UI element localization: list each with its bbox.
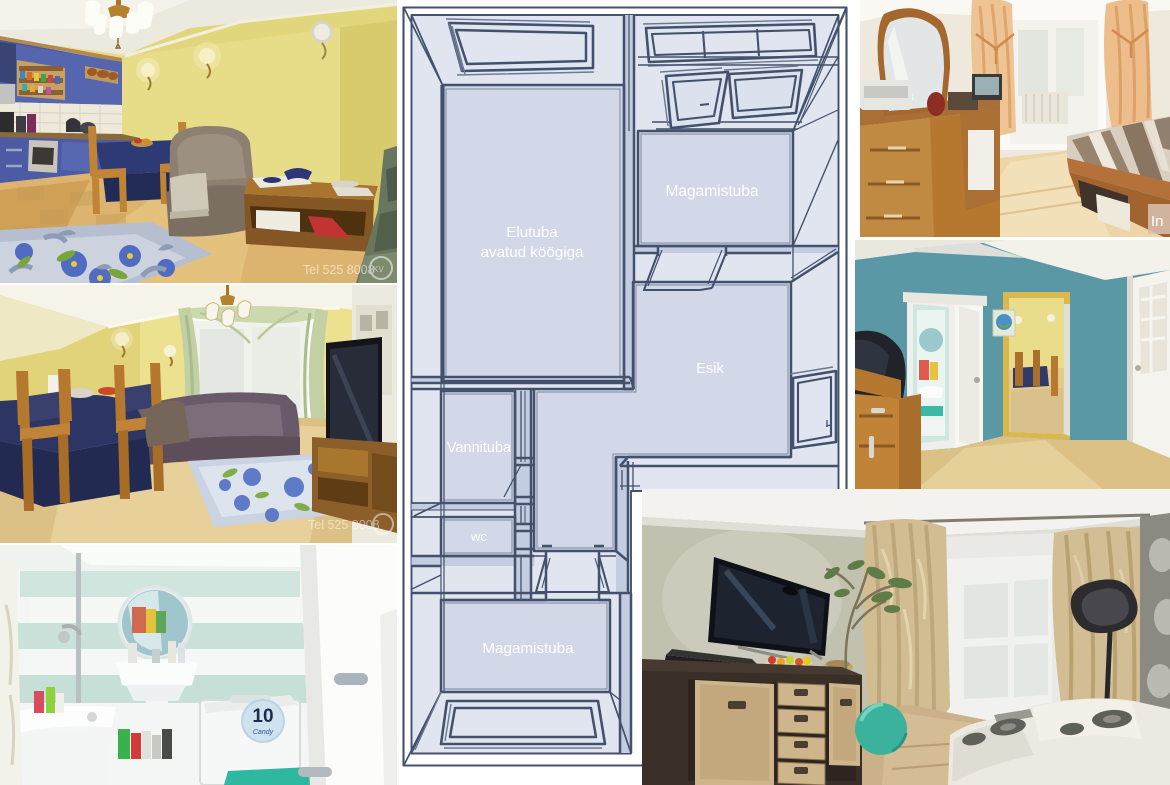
svg-text:avatud köögiga: avatud köögiga <box>480 244 584 261</box>
svg-text:Magamistuba: Magamistuba <box>482 640 574 657</box>
svg-text:Vannituba: Vannituba <box>447 440 512 456</box>
svg-text:wc: wc <box>470 529 487 544</box>
svg-text:Tel 525 8008: Tel 525 8008 <box>308 518 380 532</box>
svg-text:Candy: Candy <box>253 729 274 736</box>
svg-text:Esik: Esik <box>696 361 724 377</box>
svg-text:Tel 525 8008: Tel 525 8008 <box>303 263 375 277</box>
svg-text:In: In <box>1151 213 1164 230</box>
svg-text:Magamistuba: Magamistuba <box>665 183 758 200</box>
svg-text:Elutuba: Elutuba <box>506 224 558 241</box>
svg-text:KV: KV <box>373 265 384 274</box>
svg-text:10: 10 <box>252 706 273 727</box>
